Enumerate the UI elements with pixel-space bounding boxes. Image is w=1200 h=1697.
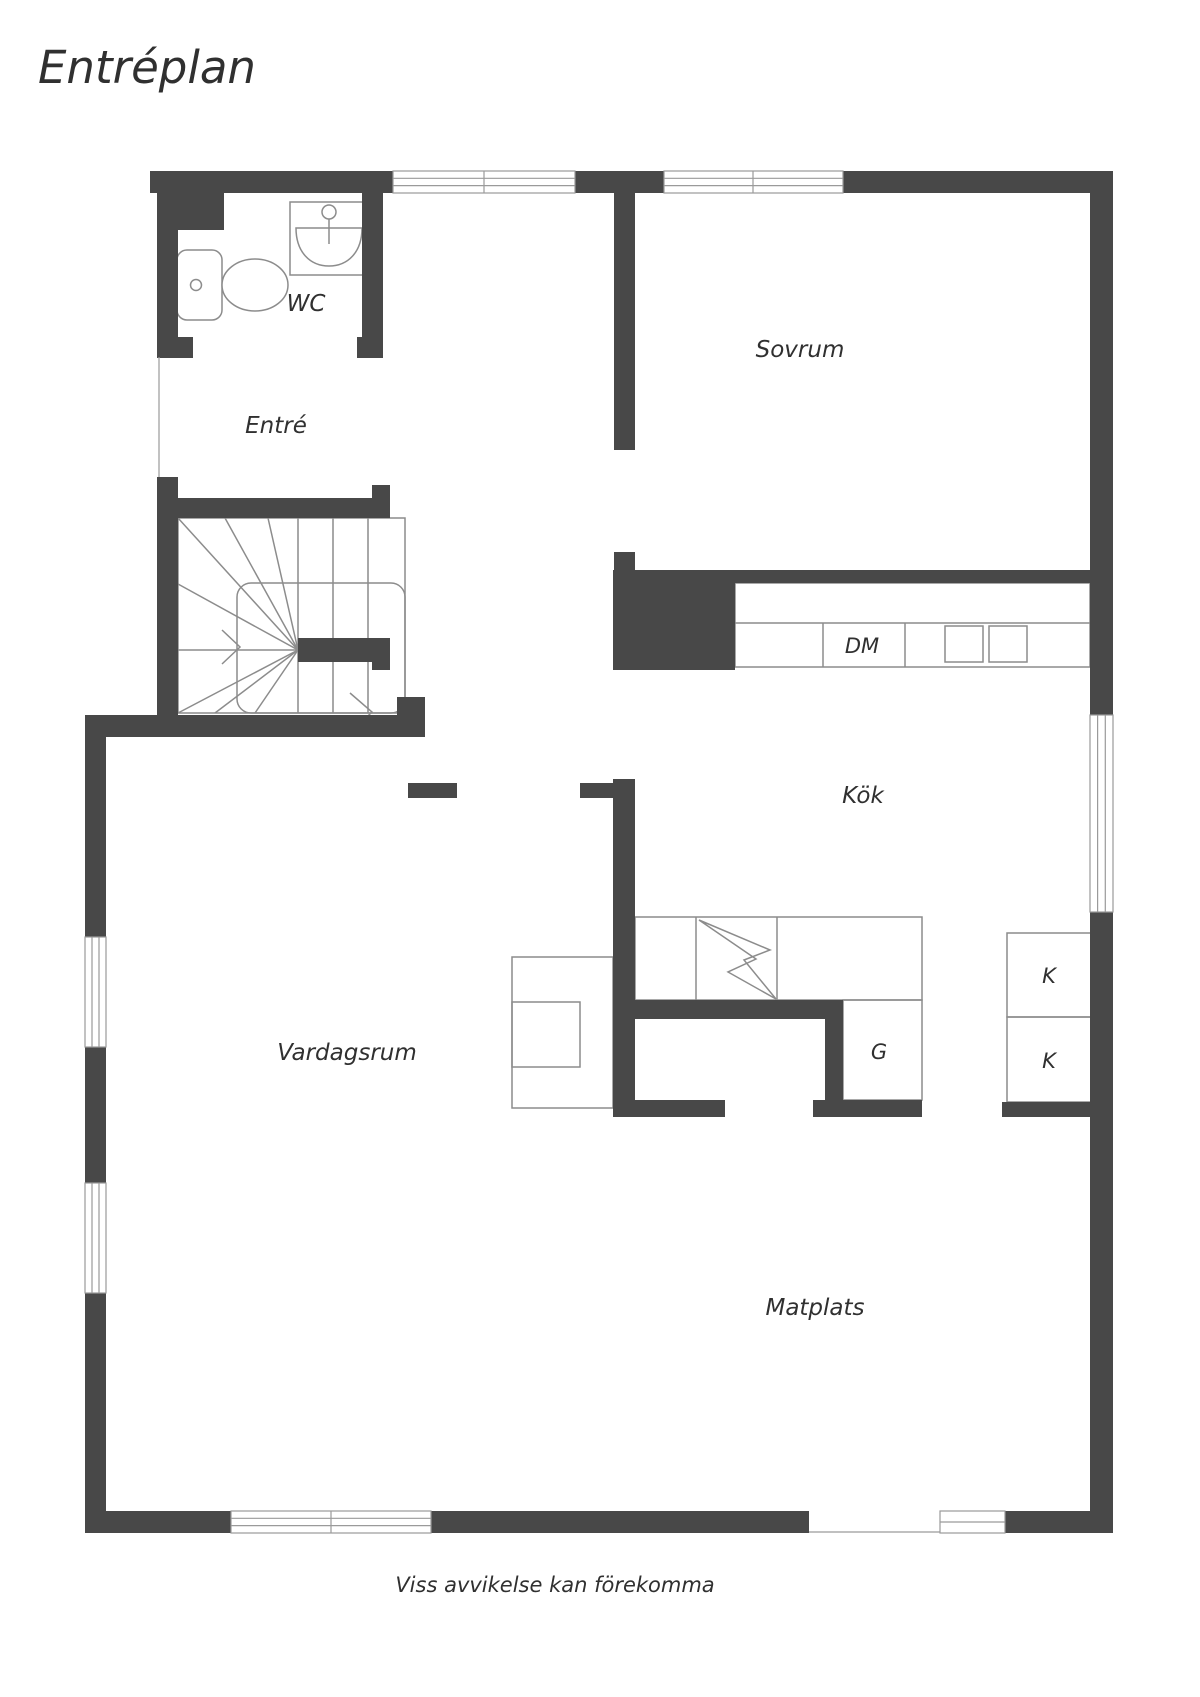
wall-below-stairs bbox=[85, 715, 425, 737]
sink-basin-left bbox=[945, 626, 983, 662]
window-frame bbox=[85, 1183, 106, 1293]
wall-right-upper bbox=[1090, 171, 1113, 715]
toilet-bowl bbox=[222, 259, 288, 311]
wall-wc-door-jamb-left bbox=[178, 337, 193, 358]
stair-outline bbox=[178, 518, 405, 713]
window-frame bbox=[1090, 715, 1113, 912]
room-label-wc: WC bbox=[287, 291, 326, 317]
wall-right-lower bbox=[1090, 912, 1113, 1533]
wall-stairs-top bbox=[178, 498, 390, 518]
wall-chimney-block bbox=[613, 570, 735, 670]
toilet-icon bbox=[177, 250, 288, 320]
appliance-label-dm: DM bbox=[845, 634, 879, 658]
wall-bottom-left bbox=[85, 1511, 231, 1533]
window-frame bbox=[85, 937, 106, 1047]
window-marker bbox=[940, 1511, 1005, 1533]
wall-stairs-mid-stub bbox=[372, 662, 390, 670]
room-label-kok: Kök bbox=[842, 783, 885, 809]
floorplan-drawing: Entréplan WC Entré Sovrum Kök Vardagsrum… bbox=[0, 0, 1200, 1697]
walls bbox=[85, 171, 1113, 1533]
room-label-matplats: Matplats bbox=[765, 1295, 864, 1321]
page-title: Entréplan bbox=[38, 41, 256, 94]
kitchen-peninsula-counter bbox=[635, 917, 922, 1000]
stove-lightning-icon bbox=[699, 920, 776, 999]
wall-bottom-right bbox=[1005, 1511, 1113, 1533]
window-marker bbox=[1090, 715, 1113, 912]
appliance-label-g: G bbox=[871, 1040, 887, 1064]
wall-bottom-mid bbox=[431, 1511, 809, 1533]
wall-sovrum-door-jamb bbox=[614, 552, 635, 570]
appliance-label-k2: K bbox=[1042, 1049, 1058, 1073]
floorplan-page: Entréplan WC Entré Sovrum Kök Vardagsrum… bbox=[0, 0, 1200, 1697]
room-label-entre: Entré bbox=[245, 413, 307, 439]
stairs-icon bbox=[178, 518, 405, 733]
wall-sovrum-kok bbox=[635, 570, 1090, 583]
kitchen-counter-north bbox=[735, 583, 1090, 667]
window-marker bbox=[393, 171, 575, 193]
room-label-vardagsrum: Vardagsrum bbox=[277, 1040, 417, 1066]
wall-wc-door-jamb-right bbox=[357, 337, 383, 358]
window-marker bbox=[664, 171, 843, 193]
window-marker bbox=[85, 937, 106, 1047]
wall-top-right bbox=[843, 171, 1113, 193]
counter-outline bbox=[735, 583, 1090, 667]
stair-winder-line bbox=[255, 650, 298, 713]
furniture-outline bbox=[512, 957, 613, 1108]
wall-peninsula-stub bbox=[580, 783, 613, 798]
stair-winder-lines bbox=[178, 518, 298, 713]
wall-peninsula bbox=[613, 779, 635, 1100]
disclaimer-text: Viss avvikelse kan förekomma bbox=[395, 1573, 714, 1597]
furniture-inner-box bbox=[512, 1002, 580, 1067]
wall-left-lower bbox=[85, 715, 106, 1533]
sink-icon bbox=[290, 202, 368, 275]
window-marker bbox=[85, 1183, 106, 1293]
livingroom-furniture bbox=[512, 957, 613, 1108]
wall-top-mid bbox=[575, 171, 664, 193]
toilet-tank bbox=[177, 250, 222, 320]
wall-corner-block bbox=[157, 171, 224, 230]
window-marker bbox=[231, 1511, 431, 1533]
stair-winder-line bbox=[178, 518, 298, 650]
wall-below-peninsula-counter bbox=[635, 1000, 825, 1019]
room-label-sovrum: Sovrum bbox=[756, 337, 845, 363]
wall-foot-kk bbox=[1002, 1102, 1092, 1117]
wall-entre-sovrum bbox=[614, 193, 635, 450]
wall-stairs-top-stub bbox=[372, 485, 390, 498]
counter-outline bbox=[635, 917, 922, 1000]
wall-wc-right bbox=[362, 193, 383, 358]
sink-basin-right bbox=[989, 626, 1027, 662]
appliance-label-k1: K bbox=[1042, 964, 1058, 988]
stair-winder-line bbox=[268, 518, 298, 650]
wall-left-stair bbox=[157, 477, 178, 737]
wall-below-stairs-stub bbox=[397, 697, 425, 715]
wall-foot-right bbox=[813, 1100, 922, 1117]
wall-foot-left bbox=[613, 1100, 725, 1117]
windows bbox=[85, 171, 1113, 1533]
wall-stairs-mid bbox=[298, 638, 390, 662]
wall-g-cabinet bbox=[825, 1000, 843, 1102]
wall-hall-stub bbox=[408, 783, 457, 798]
